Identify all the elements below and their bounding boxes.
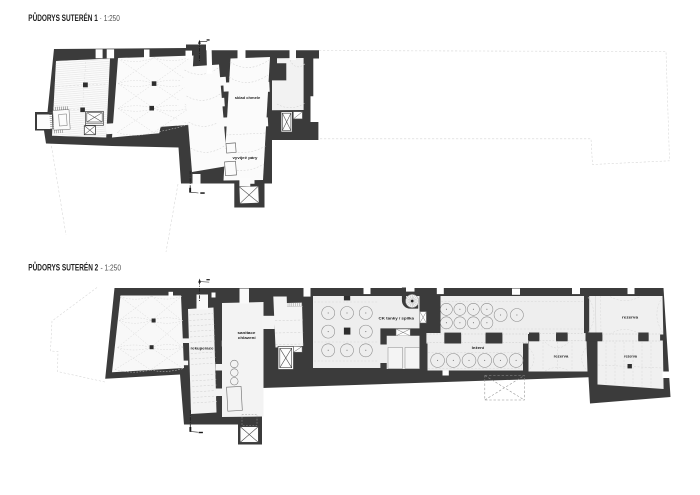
svg-text:PŮDORYS SUTERÉN 1: PŮDORYS SUTERÉN 1 [28, 12, 98, 23]
svg-text:rezerva: rezerva [624, 354, 637, 358]
svg-text:rekuperace: rekuperace [191, 346, 214, 350]
svg-text:rezerva: rezerva [622, 316, 638, 320]
svg-text:PŮDORYS SUTERÉN 2: PŮDORYS SUTERÉN 2 [28, 262, 98, 273]
svg-text:sanitace: sanitace [238, 331, 256, 335]
svg-text:CK tanky / spilka: CK tanky / spilka [379, 316, 415, 321]
svg-text:- 1:250: - 1:250 [101, 263, 122, 273]
svg-text:chlazení: chlazení [238, 336, 257, 340]
svg-text:sklad chmele: sklad chmele [235, 95, 261, 100]
svg-text:· 1:250: · 1:250 [100, 13, 120, 23]
svg-text:rezerva: rezerva [554, 354, 569, 358]
svg-text:vyvíječ páry: vyvíječ páry [233, 155, 259, 160]
svg-text:ležení: ležení [472, 346, 486, 350]
